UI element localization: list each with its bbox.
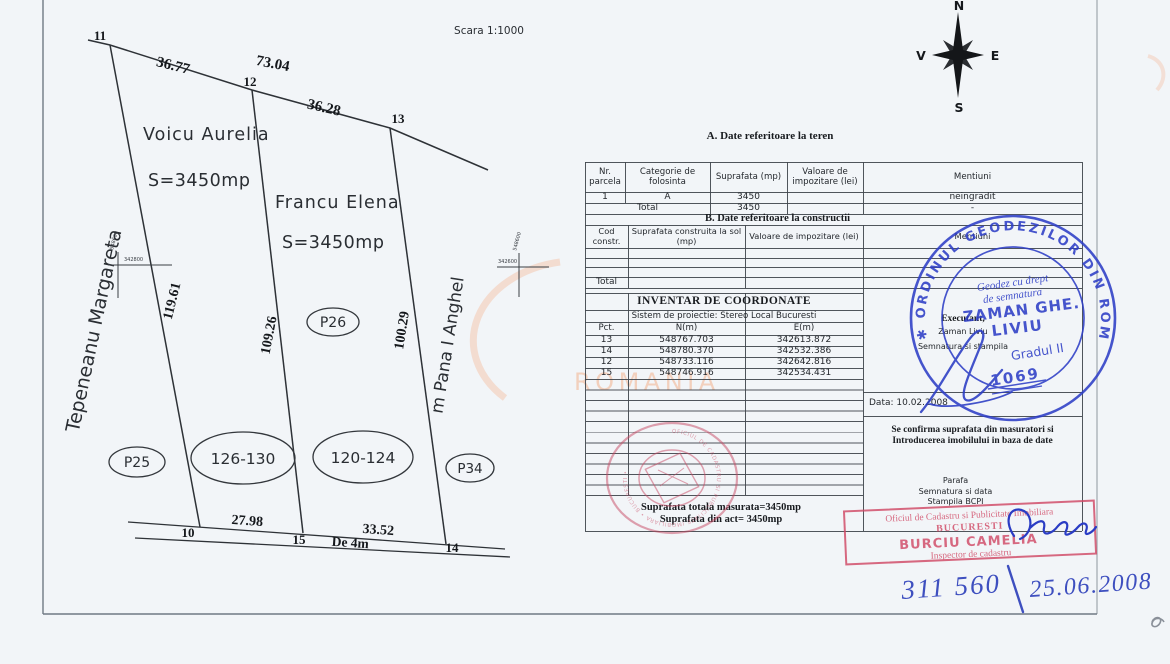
section-b-title: B. Date referitoare la constructii xyxy=(585,214,970,225)
grid-cross-2-label-e: 342600 xyxy=(498,259,517,265)
dim-100-29: 100.29 xyxy=(392,310,413,350)
watermark-swoosh-small xyxy=(1148,56,1163,90)
owner-francu-elena: Francu Elena xyxy=(275,193,400,213)
col-header-mentiuni: Mentiuni xyxy=(863,162,1082,192)
confirm-line1: Se confirma suprafata din masuratori si xyxy=(863,425,1082,436)
grid-cross-2-label-n: 548600 xyxy=(512,232,523,252)
scale-label: Scara 1:1000 xyxy=(454,25,524,37)
coord-row-e: 342534.431 xyxy=(745,368,863,379)
point-14: 14 xyxy=(446,540,460,555)
confirm-stampila: Stampila BCPI xyxy=(863,497,1048,507)
coord-row-n: 548767.703 xyxy=(628,335,745,346)
point-11: 11 xyxy=(94,28,106,43)
road-label: De 4m xyxy=(331,534,370,552)
table-line xyxy=(585,288,1082,289)
totals-line1: Suprafata totala masurata=3450mp xyxy=(585,502,857,514)
coord-row-pct: 14 xyxy=(585,346,628,357)
cadastral-plan-sheet: ROMANIA Scara 1:1000 11 36.77 73.04 12 3… xyxy=(0,0,1170,664)
total-b-label: Total xyxy=(585,277,628,288)
coord-row-e: 342642.816 xyxy=(745,357,863,368)
compass-v: V xyxy=(916,48,926,63)
owner-tepeneanu-margareta: Tepeneanu Margareta xyxy=(62,227,127,435)
grid-cross-1-label-e: 342800 xyxy=(124,257,143,263)
coords-col-pct: Pct. xyxy=(585,322,628,335)
confirm-semnatura: Semnatura si data xyxy=(863,487,1048,497)
col-header-valoare-b: Valoare de impozitare (lei) xyxy=(747,225,861,248)
point-10: 10 xyxy=(182,525,195,540)
compass-s: S xyxy=(954,100,963,115)
dim-73-04: 73.04 xyxy=(255,53,292,75)
table-line xyxy=(787,162,788,214)
coords-col-n: N(m) xyxy=(628,322,745,335)
row1-nr: 1 xyxy=(585,192,625,203)
compass-e: E xyxy=(991,48,1000,63)
compass-n: N xyxy=(954,0,964,13)
col-header-cod-constr: Cod constr. xyxy=(585,225,628,248)
row1-mentiuni: neingradit xyxy=(863,192,1082,203)
table-line xyxy=(863,392,1082,393)
label-p25: P25 xyxy=(124,455,150,471)
table-line xyxy=(745,225,746,288)
owner-voicu-aurelia: Voicu Aurelia xyxy=(143,125,270,145)
coords-title: INVENTAR DE COORDONATE xyxy=(585,294,863,310)
executant-sig-label: Semnatura si stampila xyxy=(863,342,1063,352)
coord-row-n: 548780.370 xyxy=(628,346,745,357)
area-parcel1: S=3450mp xyxy=(148,171,250,191)
table-line xyxy=(585,277,1082,278)
col-header-valoare: Valoare de impozitare (lei) xyxy=(789,162,861,192)
executant-date: Data: 10.02.2008 xyxy=(869,398,1019,409)
compass-main-star xyxy=(932,12,984,98)
confirm-line2: Introducerea imobilului in baza de date xyxy=(863,436,1082,447)
col-header-suprafata: Suprafata (mp) xyxy=(712,162,785,192)
coord-row-n: 548746.916 xyxy=(628,368,745,379)
table-line xyxy=(585,258,1082,259)
totals-line2: Suprafata din act= 3450mp xyxy=(585,514,857,526)
col-header-categorie: Categorie de folosinta xyxy=(627,162,708,192)
table-line xyxy=(585,248,1082,249)
coord-row-pct: 12 xyxy=(585,357,628,368)
label-120-124: 120-124 xyxy=(331,449,396,467)
table-line xyxy=(1082,162,1083,531)
coord-row-e: 342613.872 xyxy=(745,335,863,346)
total-a-mentiuni: - xyxy=(863,203,1082,214)
table-line xyxy=(863,416,1082,417)
row1-suprafata: 3450 xyxy=(710,192,787,203)
dim-27-98: 27.98 xyxy=(231,513,263,530)
label-126-130: 126-130 xyxy=(211,450,276,468)
dim-36-77: 36.77 xyxy=(155,54,192,78)
document-frame xyxy=(43,0,1097,614)
point-12: 12 xyxy=(244,74,257,89)
area-parcel2: S=3450mp xyxy=(282,233,384,253)
coord-row-e: 342532.386 xyxy=(745,346,863,357)
table-line xyxy=(585,531,1082,532)
coords-subtitle: Sistem de proiectie: Stereo Local Bucure… xyxy=(585,310,863,322)
label-p34: P34 xyxy=(457,461,482,477)
total-a-label: Total xyxy=(585,203,710,214)
watermark-swoosh xyxy=(473,262,560,398)
dim-36-28: 36.28 xyxy=(306,97,342,120)
point-15: 15 xyxy=(293,532,307,547)
compass-rose-icon: N V E S xyxy=(916,0,999,115)
confirm-parafa: Parafa xyxy=(863,476,1048,486)
col-header-nr-parcela: Nr. parcela xyxy=(585,162,625,192)
table-line xyxy=(585,267,1082,268)
coord-row-pct: 13 xyxy=(585,335,628,346)
coords-col-e: E(m) xyxy=(745,322,863,335)
coord-row-n: 548733.116 xyxy=(628,357,745,368)
row1-categorie: A xyxy=(625,192,710,203)
table-line xyxy=(628,225,629,288)
col-header-mentiuni-b: Mentiuni xyxy=(863,225,1082,248)
section-a-title: A. Date referitoare la teren xyxy=(585,129,955,143)
executant-label: Executant, xyxy=(863,314,1063,325)
owner-pana-anghel: m Pana I Anghel xyxy=(427,275,468,414)
col-header-suprafata-construita: Suprafata construita la sol (mp) xyxy=(630,225,743,248)
executant-name: Zaman Liviu xyxy=(863,327,1063,337)
dim-109-26: 109.26 xyxy=(259,315,281,356)
coord-row-pct: 15 xyxy=(585,368,628,379)
dim-119-61: 119.61 xyxy=(161,281,185,321)
point-13: 13 xyxy=(392,111,406,126)
label-p26: P26 xyxy=(320,315,346,331)
